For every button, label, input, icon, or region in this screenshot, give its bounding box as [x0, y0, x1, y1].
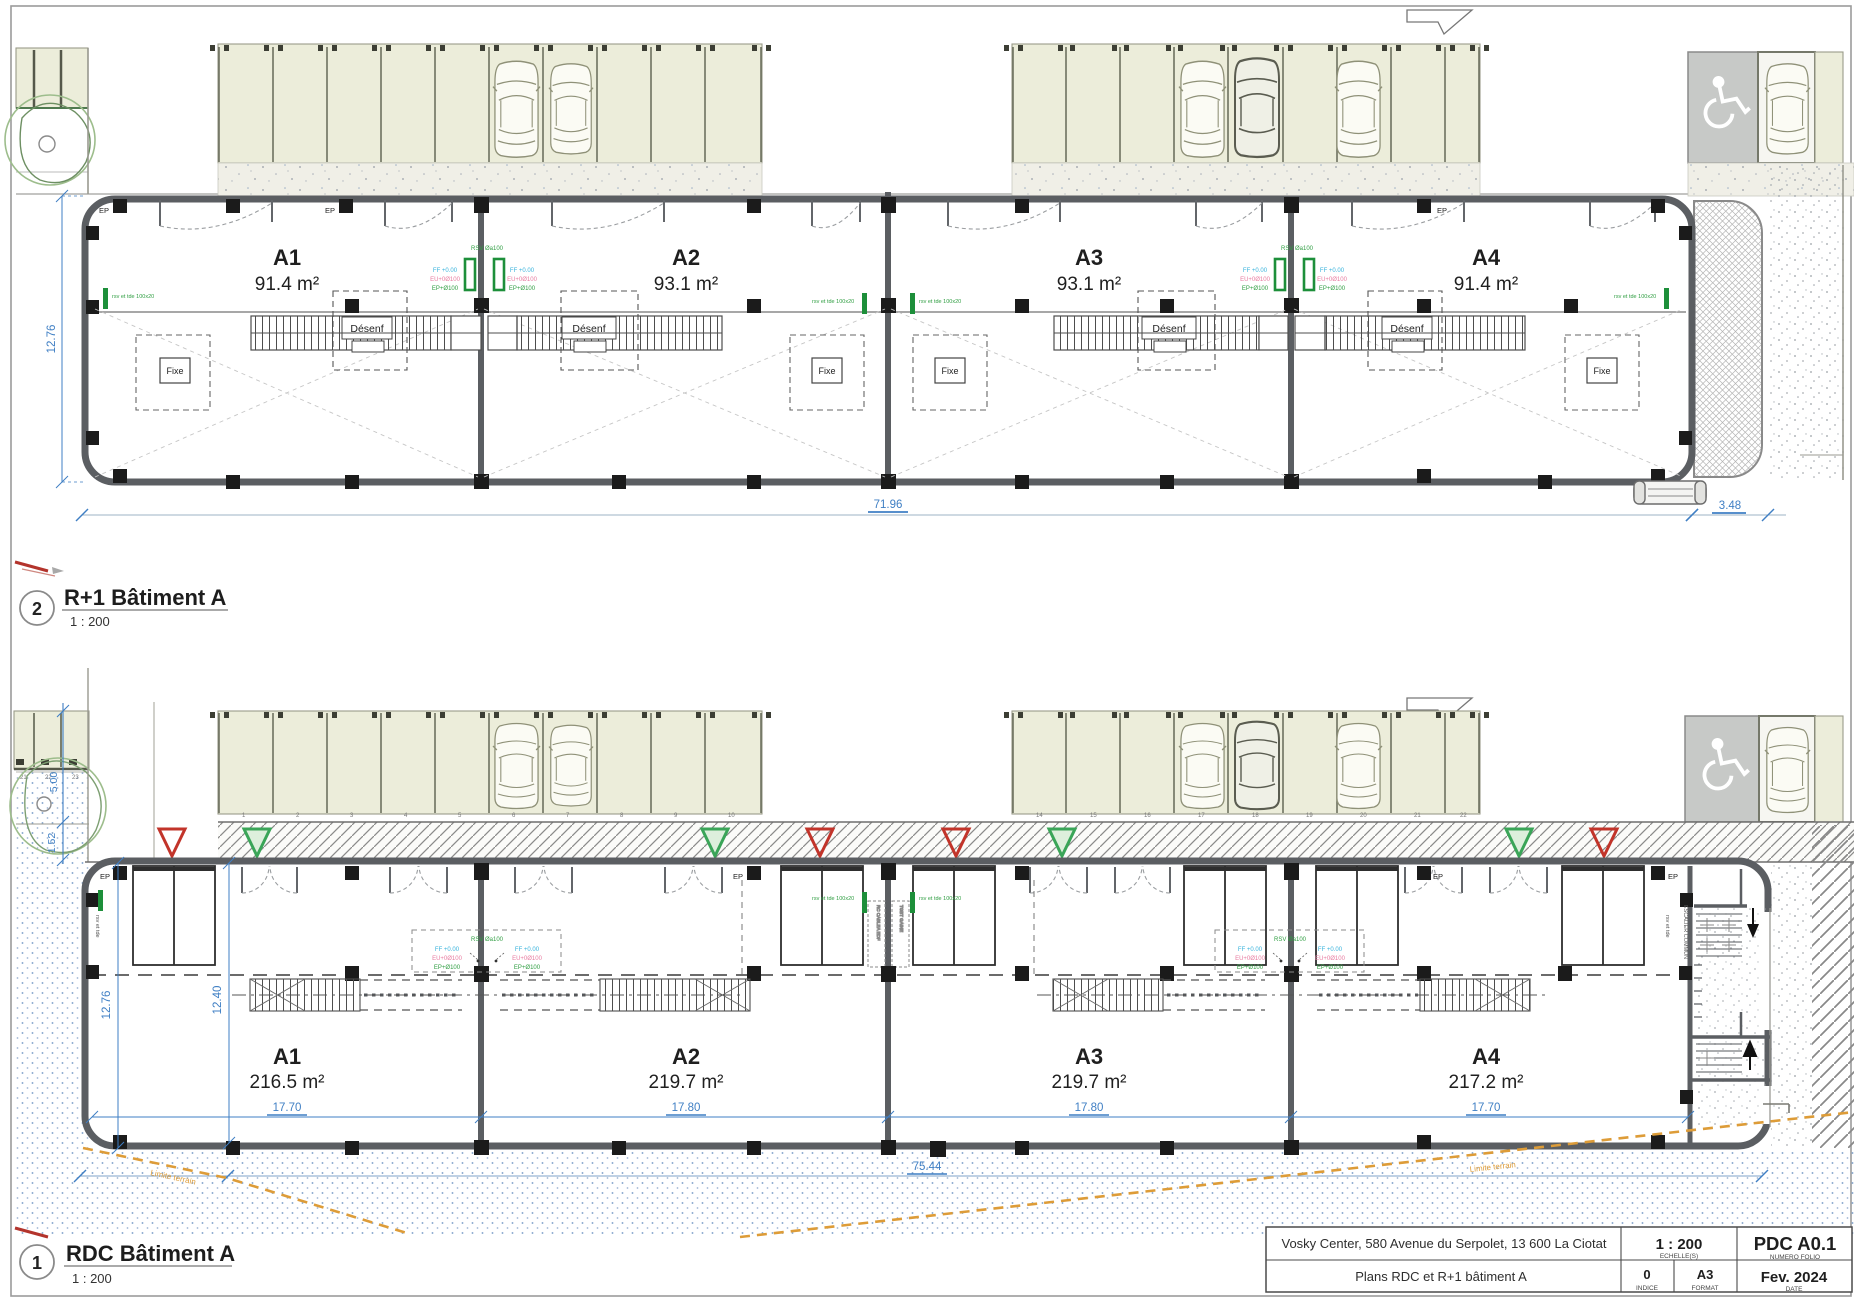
svg-text:71.96: 71.96 — [874, 499, 903, 511]
svg-text:17.80: 17.80 — [1075, 1102, 1104, 1114]
svg-text:EP+Ø100: EP+Ø100 — [509, 286, 536, 292]
svg-text:PDC A0.1: PDC A0.1 — [1754, 1233, 1837, 1254]
svg-text:EU+0Ø100: EU+0Ø100 — [1240, 277, 1271, 283]
svg-text:EP+Ø100: EP+Ø100 — [1317, 965, 1344, 971]
svg-text:FF +0.00: FF +0.00 — [1320, 268, 1345, 274]
svg-text:A1: A1 — [273, 245, 301, 270]
svg-text:EU+0Ø100: EU+0Ø100 — [430, 277, 461, 283]
svg-text:rsv et tde 100x20: rsv et tde 100x20 — [812, 896, 854, 902]
svg-text:16: 16 — [1144, 813, 1151, 819]
svg-text:216.5 m²: 216.5 m² — [250, 1072, 325, 1093]
svg-text:1 : 200: 1 : 200 — [70, 614, 110, 629]
svg-text:EU+0Ø100: EU+0Ø100 — [507, 277, 538, 283]
svg-text:EU+0Ø100: EU+0Ø100 — [512, 956, 543, 962]
svg-text:12.76: 12.76 — [101, 991, 113, 1020]
svg-text:EP: EP — [325, 206, 335, 215]
svg-text:Fev. 2024: Fev. 2024 — [1761, 1269, 1828, 1286]
svg-text:3.48: 3.48 — [1719, 500, 1741, 512]
svg-text:A3: A3 — [1075, 1044, 1103, 1069]
svg-text:12.40: 12.40 — [212, 986, 224, 1015]
svg-text:EP: EP — [733, 872, 743, 881]
svg-text:FF +0.00: FF +0.00 — [1238, 947, 1263, 953]
svg-text:FF +0.00: FF +0.00 — [435, 947, 460, 953]
svg-text:DATE: DATE — [1786, 1286, 1804, 1293]
svg-text:10: 10 — [728, 813, 735, 819]
svg-text:FF +0.00: FF +0.00 — [1243, 268, 1268, 274]
svg-text:EP: EP — [1437, 206, 1447, 215]
svg-text:219.7 m²: 219.7 m² — [1052, 1072, 1127, 1093]
svg-text:rsv et tde: rsv et tde — [94, 915, 100, 938]
svg-text:12.76: 12.76 — [46, 325, 58, 354]
svg-text:rsv et tde: rsv et tde — [1664, 915, 1670, 938]
svg-text:rsv et tde 100x20: rsv et tde 100x20 — [919, 896, 961, 902]
svg-text:EP: EP — [1433, 872, 1443, 881]
svg-text:ECHELLE(S): ECHELLE(S) — [1660, 1253, 1698, 1260]
svg-text:rsv et tde 100x20: rsv et tde 100x20 — [919, 299, 961, 305]
svg-text:A4: A4 — [1472, 1044, 1501, 1069]
svg-text:2: 2 — [32, 599, 42, 619]
svg-text:EU+0Ø100: EU+0Ø100 — [432, 956, 463, 962]
svg-text:A4: A4 — [1472, 245, 1501, 270]
svg-text:18: 18 — [1252, 813, 1259, 819]
svg-text:15: 15 — [1090, 813, 1097, 819]
svg-text:RSV Øa100: RSV Øa100 — [1274, 937, 1307, 943]
svg-text:Vosky Center, 580 Avenue du Se: Vosky Center, 580 Avenue du Serpolet, 13… — [1282, 1236, 1607, 1251]
svg-text:EP: EP — [99, 206, 109, 215]
svg-text:EP+Ø100: EP+Ø100 — [434, 965, 461, 971]
svg-text:A3: A3 — [1697, 1267, 1714, 1282]
svg-text:A1: A1 — [273, 1044, 301, 1069]
svg-text:EP+Ø100: EP+Ø100 — [1237, 965, 1264, 971]
svg-text:TGBT GAINE: TGBT GAINE — [899, 905, 904, 932]
svg-text:219.7 m²: 219.7 m² — [649, 1072, 724, 1093]
svg-text:23: 23 — [72, 775, 79, 781]
svg-text:RSV Øa100: RSV Øa100 — [1281, 246, 1314, 252]
svg-text:NUMERO FOLIO: NUMERO FOLIO — [1770, 1254, 1820, 1261]
svg-text:5.00: 5.00 — [48, 772, 60, 793]
svg-text:91.4 m²: 91.4 m² — [255, 274, 319, 295]
svg-text:EP: EP — [100, 872, 110, 881]
svg-text:FF +0.00: FF +0.00 — [515, 947, 540, 953]
svg-text:RDC Bâtiment A: RDC Bâtiment A — [66, 1241, 235, 1266]
svg-text:Fixe: Fixe — [818, 366, 835, 376]
svg-text:17: 17 — [1198, 813, 1205, 819]
svg-text:17.80: 17.80 — [672, 1102, 701, 1114]
svg-text:93.1 m²: 93.1 m² — [1057, 274, 1121, 295]
svg-text:217.2 m²: 217.2 m² — [1449, 1072, 1524, 1093]
svg-text:rsv et tde 100x20: rsv et tde 100x20 — [812, 299, 854, 305]
svg-text:Fixe: Fixe — [941, 366, 958, 376]
svg-text:91.4 m²: 91.4 m² — [1454, 274, 1518, 295]
svg-text:EP+Ø100: EP+Ø100 — [1319, 286, 1346, 292]
svg-text:1 : 200: 1 : 200 — [1656, 1236, 1703, 1253]
svg-text:FF +0.00: FF +0.00 — [510, 268, 535, 274]
svg-text:A3: A3 — [1075, 245, 1103, 270]
svg-text:RSV Øa100: RSV Øa100 — [471, 937, 504, 943]
svg-text:FORMAT: FORMAT — [1692, 1285, 1719, 1292]
svg-text:1 : 200: 1 : 200 — [72, 1271, 112, 1286]
svg-text:A2: A2 — [672, 1044, 700, 1069]
svg-text:22: 22 — [1460, 813, 1467, 819]
svg-text:ESCALIER COMMUN: ESCALIER COMMUN — [1682, 905, 1688, 959]
svg-text:EP+Ø100: EP+Ø100 — [432, 286, 459, 292]
svg-text:14: 14 — [1036, 813, 1043, 819]
svg-text:A2: A2 — [672, 245, 700, 270]
svg-text:93.1 m²: 93.1 m² — [654, 274, 718, 295]
svg-text:0: 0 — [1643, 1267, 1650, 1282]
svg-text:19: 19 — [1306, 813, 1313, 819]
svg-text:Fixe: Fixe — [1593, 366, 1610, 376]
svg-text:17.70: 17.70 — [1472, 1102, 1501, 1114]
svg-text:FF +0.00: FF +0.00 — [433, 268, 458, 274]
svg-text:Plans RDC et R+1 bâtiment A: Plans RDC et R+1 bâtiment A — [1355, 1269, 1527, 1284]
svg-text:rsv et tde 100x20: rsv et tde 100x20 — [1614, 294, 1656, 300]
svg-text:RSV Øa100: RSV Øa100 — [471, 246, 504, 252]
svg-text:Fixe: Fixe — [166, 366, 183, 376]
svg-text:R+1 Bâtiment A: R+1 Bâtiment A — [64, 585, 227, 610]
svg-text:EU+0Ø100: EU+0Ø100 — [1315, 956, 1346, 962]
svg-text:FF +0.00: FF +0.00 — [1318, 947, 1343, 953]
svg-text:1: 1 — [32, 1253, 42, 1273]
svg-text:17.70: 17.70 — [273, 1102, 302, 1114]
svg-text:EP: EP — [1668, 872, 1678, 881]
svg-text:20: 20 — [1360, 813, 1367, 819]
svg-text:RC CABLEA EDF: RC CABLEA EDF — [876, 905, 881, 941]
svg-text:EP+Ø100: EP+Ø100 — [1242, 286, 1269, 292]
svg-text:EP+Ø100: EP+Ø100 — [514, 965, 541, 971]
svg-text:rsv et tde 100x20: rsv et tde 100x20 — [112, 294, 154, 300]
svg-text:1.52: 1.52 — [46, 833, 58, 854]
svg-text:INDICE: INDICE — [1636, 1285, 1659, 1292]
svg-text:21: 21 — [1414, 813, 1421, 819]
svg-text:75.44: 75.44 — [913, 1161, 942, 1173]
svg-text:EU+0Ø100: EU+0Ø100 — [1317, 277, 1348, 283]
svg-text:EU+0Ø100: EU+0Ø100 — [1235, 956, 1266, 962]
